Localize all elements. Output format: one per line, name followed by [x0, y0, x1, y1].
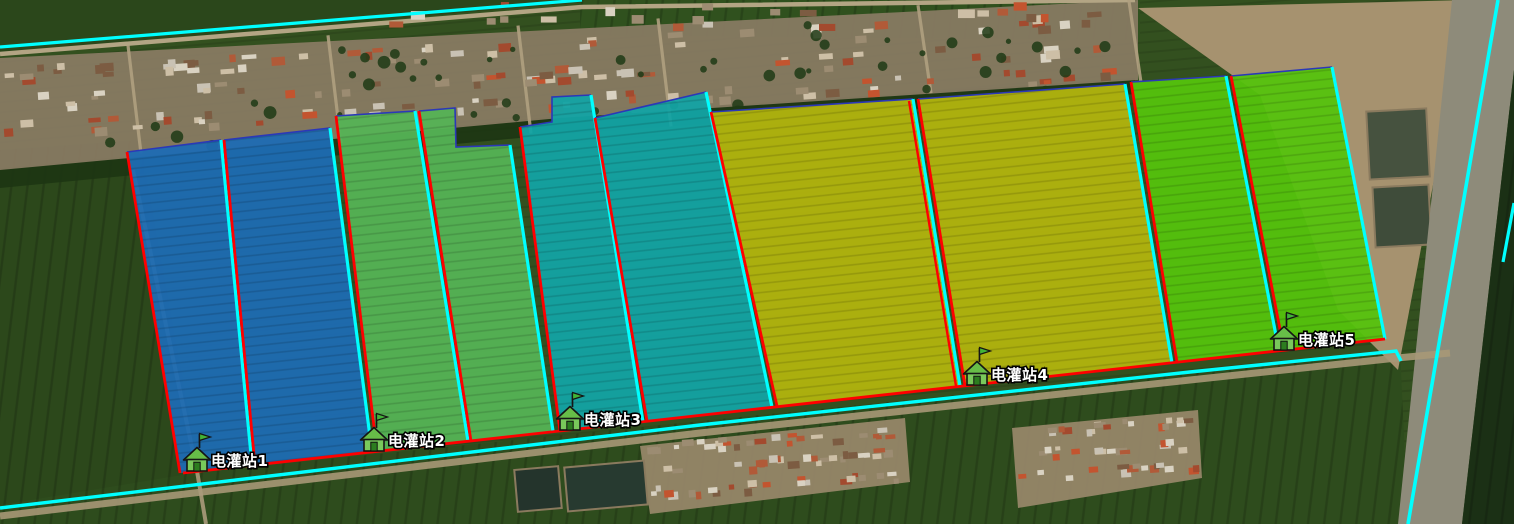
station-label: 电灌站5: [1298, 331, 1355, 349]
house-door-icon: [974, 376, 980, 385]
station-label: 电灌站2: [388, 432, 445, 450]
house-door-icon: [371, 442, 377, 451]
map-canvas[interactable]: 电灌站1 电灌站2 电灌站3 电灌站4: [0, 0, 1514, 524]
station-label: 电灌站3: [584, 411, 641, 429]
house-door-icon: [194, 462, 200, 471]
house-door-icon: [567, 421, 573, 430]
station-label: 电灌站1: [211, 452, 268, 470]
house-door-icon: [1281, 341, 1287, 350]
station-label: 电灌站4: [991, 366, 1048, 384]
